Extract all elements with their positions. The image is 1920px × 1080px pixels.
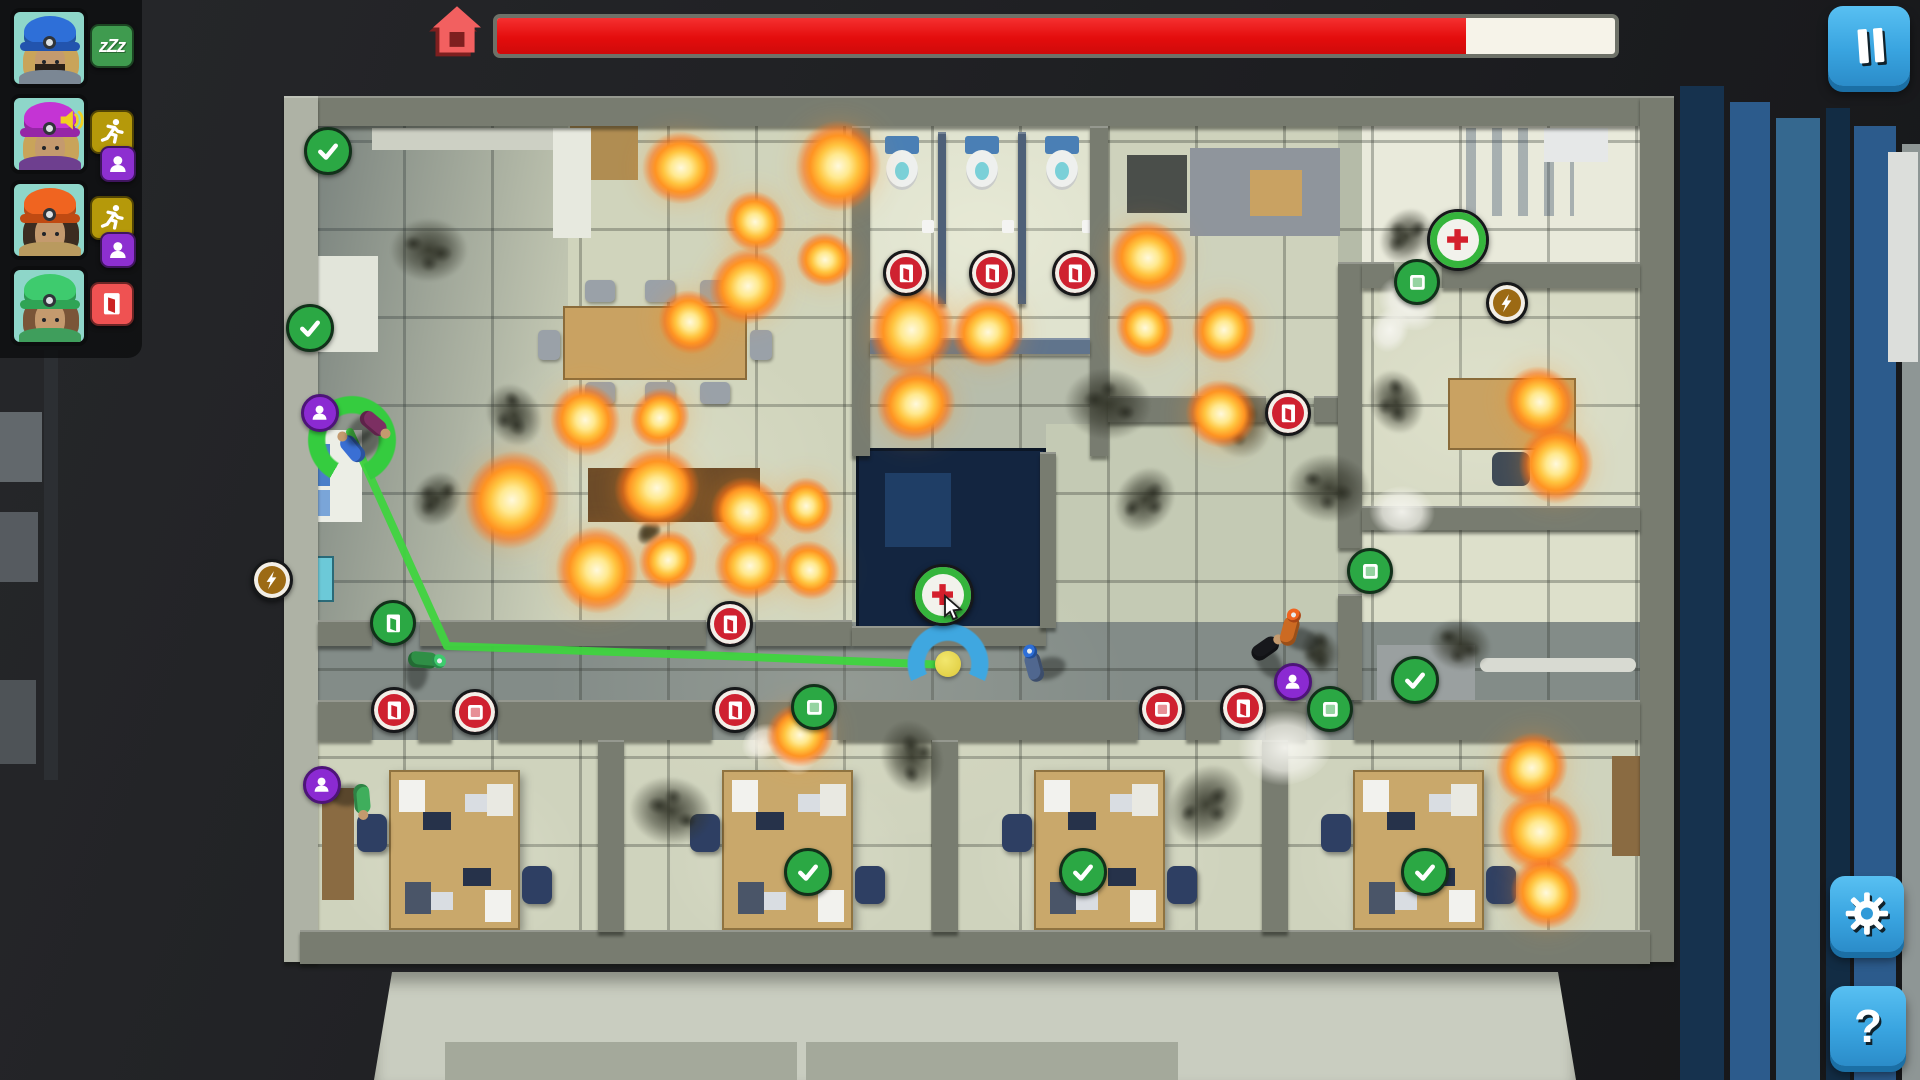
left-cabinet xyxy=(0,680,36,764)
door-icon xyxy=(381,611,406,636)
office-chair xyxy=(1486,866,1516,904)
door-marker-red[interactable] xyxy=(707,601,753,647)
reception-counter xyxy=(553,128,591,238)
check-marker-green[interactable] xyxy=(286,304,334,352)
toilet xyxy=(964,136,1000,196)
window-icon xyxy=(802,695,827,720)
wall xyxy=(758,700,790,740)
window-marker-green[interactable] xyxy=(1347,548,1393,594)
wall xyxy=(498,700,712,740)
door-icon xyxy=(1231,696,1256,721)
window-marker-green[interactable] xyxy=(791,684,837,730)
bolt-icon xyxy=(1496,292,1518,314)
run-icon xyxy=(97,117,127,147)
wall xyxy=(300,96,1650,126)
window-marker-green[interactable] xyxy=(1394,259,1440,305)
stall-divider xyxy=(1018,132,1026,304)
character-helmet xyxy=(431,654,446,669)
wall xyxy=(318,700,372,740)
wall xyxy=(1338,262,1362,548)
jacket xyxy=(19,328,81,346)
left-cabinet xyxy=(0,512,38,582)
check-marker-green[interactable] xyxy=(784,848,832,896)
window-icon xyxy=(1358,559,1383,584)
jacket xyxy=(19,242,81,260)
office-desk xyxy=(722,770,853,930)
cross-icon xyxy=(1443,225,1472,254)
door-marker-red[interactable] xyxy=(883,250,929,296)
wall xyxy=(1338,594,1362,700)
wall xyxy=(300,930,1650,964)
character[interactable] xyxy=(345,777,379,823)
door-icon xyxy=(1063,261,1088,286)
stall-divider xyxy=(938,132,946,304)
check-marker-green[interactable] xyxy=(1059,848,1107,896)
level-progress-bar xyxy=(493,14,1619,58)
entrance-mat xyxy=(445,1042,797,1080)
chair xyxy=(585,280,615,302)
window-icon xyxy=(1405,270,1430,295)
bolt-marker-gold[interactable] xyxy=(1486,282,1528,324)
portrait-firefighter-green[interactable] xyxy=(10,266,88,346)
help-button[interactable]: ? xyxy=(1830,986,1906,1066)
server-cabinet xyxy=(1127,155,1187,213)
door-icon xyxy=(980,261,1005,286)
chair xyxy=(538,330,560,360)
window-icon xyxy=(1318,697,1343,722)
person-icon xyxy=(106,238,130,262)
character[interactable] xyxy=(401,643,447,677)
left-column xyxy=(44,350,58,780)
check-marker-green[interactable] xyxy=(1391,656,1439,704)
check-icon xyxy=(297,315,323,341)
victim-marker[interactable] xyxy=(301,394,339,432)
check-marker-green[interactable] xyxy=(1401,848,1449,896)
office-desk xyxy=(1034,770,1165,930)
helmet-lamp xyxy=(43,122,56,135)
door-icon xyxy=(97,289,127,319)
gear-icon xyxy=(1844,890,1890,937)
door-marker-green[interactable] xyxy=(370,600,416,646)
question-icon: ? xyxy=(1854,999,1882,1053)
door-icon xyxy=(894,261,919,286)
person-icon xyxy=(106,152,130,176)
unit-slot: zZz xyxy=(10,8,142,92)
window-marker-red[interactable] xyxy=(452,689,498,735)
equipment-box xyxy=(1250,170,1302,216)
window-marker-red[interactable] xyxy=(1139,686,1185,732)
sleep-label: zZz xyxy=(99,36,125,57)
facade-window xyxy=(1888,152,1918,362)
run-icon xyxy=(97,203,127,233)
unit-slot xyxy=(10,94,142,178)
office-chair xyxy=(1492,452,1530,486)
eye xyxy=(42,318,46,322)
chair xyxy=(700,382,730,404)
window-icon xyxy=(1150,697,1175,722)
conference-table xyxy=(563,306,747,380)
door-marker-red[interactable] xyxy=(1265,390,1311,436)
bolt-marker-gold[interactable] xyxy=(251,559,293,601)
door-marker-red[interactable] xyxy=(969,250,1015,296)
toilet-paper xyxy=(922,220,934,233)
corkboard xyxy=(1612,756,1640,856)
chair xyxy=(700,280,730,302)
med-marker-med[interactable] xyxy=(912,564,974,626)
chair xyxy=(585,382,615,404)
window-marker-green[interactable] xyxy=(1307,686,1353,732)
ac-unit xyxy=(1544,128,1608,162)
wall xyxy=(1266,700,1306,740)
facade-panel xyxy=(1730,102,1770,1080)
wall xyxy=(284,96,318,962)
status-badge-carry xyxy=(100,146,136,182)
wall xyxy=(1354,700,1640,740)
wall xyxy=(418,700,452,740)
victim-marker[interactable] xyxy=(303,766,341,804)
toilet-seat xyxy=(975,162,989,180)
settings-button[interactable] xyxy=(1830,876,1904,952)
office-chair xyxy=(1002,814,1032,852)
eye xyxy=(42,146,46,150)
wall xyxy=(1040,452,1056,628)
home-button[interactable] xyxy=(424,0,490,66)
wall-shelf xyxy=(372,128,553,150)
monitor xyxy=(1530,388,1560,412)
wall xyxy=(1108,396,1266,422)
jacket xyxy=(19,70,81,88)
door-icon xyxy=(718,612,743,637)
facade-panel xyxy=(1680,86,1724,1080)
door-marker-red[interactable] xyxy=(1220,685,1266,731)
curtain-rod xyxy=(1480,658,1636,672)
unit-slot xyxy=(10,266,142,350)
wall xyxy=(420,620,706,646)
wall xyxy=(1362,262,1394,288)
wall xyxy=(1186,700,1220,740)
office-chair xyxy=(690,814,720,852)
door-icon xyxy=(1276,401,1301,426)
facade-panel xyxy=(1776,118,1820,1080)
helmet-lamp xyxy=(43,36,56,49)
status-badge-sleep: zZz xyxy=(90,24,134,68)
wall xyxy=(598,740,624,932)
toilet xyxy=(1044,136,1080,196)
check-icon xyxy=(795,859,821,885)
eye xyxy=(42,232,46,236)
window-icon xyxy=(463,700,488,725)
wall xyxy=(1262,740,1288,932)
door-icon xyxy=(723,698,748,723)
portrait-firefighter-orange[interactable] xyxy=(10,180,88,260)
bolt-icon xyxy=(261,569,283,591)
character-head xyxy=(358,810,369,821)
status-badge-carry xyxy=(100,232,136,268)
wall xyxy=(1362,506,1640,530)
wall xyxy=(1090,126,1108,456)
toilet-seat xyxy=(895,162,909,180)
wall xyxy=(932,740,958,932)
eye xyxy=(55,318,59,322)
eye xyxy=(55,232,59,236)
wall xyxy=(318,620,372,646)
office-chair xyxy=(855,866,885,904)
unit-slot xyxy=(10,180,142,264)
cross-icon xyxy=(928,580,957,609)
eye xyxy=(55,146,59,150)
entrance-canopy xyxy=(374,972,1576,1080)
pause-icon xyxy=(1844,21,1895,71)
pause-button[interactable] xyxy=(1828,6,1910,86)
move-target-dot xyxy=(935,651,961,677)
entrance-mat xyxy=(806,1042,1178,1080)
check-icon xyxy=(1070,859,1096,885)
door-marker-red[interactable] xyxy=(1052,250,1098,296)
wall xyxy=(852,126,870,456)
portrait-firefighter-magenta[interactable] xyxy=(10,94,88,174)
door-icon xyxy=(382,698,407,723)
office-desk xyxy=(389,770,520,930)
check-icon xyxy=(1412,859,1438,885)
chair xyxy=(645,382,675,404)
door-marker-red[interactable] xyxy=(712,687,758,733)
left-cabinet xyxy=(0,412,42,482)
status-badge-door xyxy=(90,282,134,326)
person-icon xyxy=(309,402,330,423)
helmet-lamp xyxy=(43,208,56,221)
wall xyxy=(1314,396,1340,422)
portrait-firefighter-blue[interactable] xyxy=(10,8,88,88)
wall xyxy=(756,620,852,646)
helmet-lamp xyxy=(43,294,56,307)
person-icon xyxy=(1282,671,1303,692)
check-icon xyxy=(1402,667,1428,693)
med-marker-med[interactable] xyxy=(1427,209,1489,271)
toilet-seat xyxy=(1055,162,1069,180)
toilet-paper xyxy=(1002,220,1014,233)
person-icon xyxy=(311,774,332,795)
dark-table xyxy=(588,468,760,522)
office-chair xyxy=(1167,866,1197,904)
check-marker-green[interactable] xyxy=(304,127,352,175)
check-icon xyxy=(315,138,341,164)
chair xyxy=(750,330,772,360)
progress-fill xyxy=(497,18,1466,54)
victim-marker[interactable] xyxy=(1274,663,1312,701)
wall xyxy=(870,338,1090,354)
jacket xyxy=(19,156,81,174)
office-chair xyxy=(522,866,552,904)
door-marker-red[interactable] xyxy=(371,687,417,733)
game-viewport[interactable]: zZz ? xyxy=(0,0,1920,1080)
toilet xyxy=(884,136,920,196)
speaker-icon xyxy=(58,106,86,134)
office-chair xyxy=(1321,814,1351,852)
wall xyxy=(1640,96,1674,962)
elevator-car xyxy=(885,473,951,547)
chair xyxy=(645,280,675,302)
